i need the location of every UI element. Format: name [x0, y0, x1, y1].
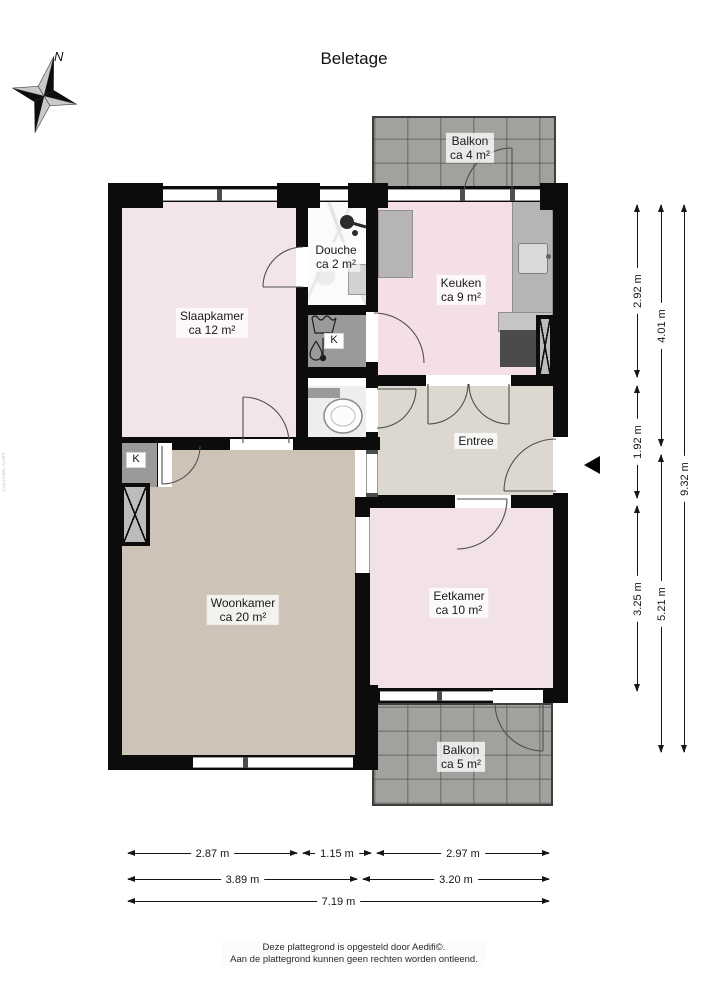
- room-name: Entree: [458, 434, 493, 448]
- dim-right-1-92: 1.92 m: [637, 386, 638, 498]
- door-arc-balkon-bottom: [495, 703, 543, 751]
- dim-label: 3.89 m: [221, 874, 265, 886]
- footer-line-1: Deze plattegrond is opgesteld door Aedif…: [230, 942, 478, 954]
- dim-right-3-25: 3.25 m: [637, 506, 638, 691]
- dim-bottom-3-89: 3.89 m: [128, 879, 357, 880]
- door-arc-slaapkamer: [243, 397, 289, 443]
- dim-right-5-21: 5.21 m: [661, 455, 662, 752]
- door-arc-eetkamer: [457, 499, 507, 549]
- door-arc-front-door: [504, 439, 556, 491]
- room-label-balkon-top: Balkon ca 4 m²: [446, 133, 494, 163]
- room-label-entree: Entree: [454, 433, 497, 449]
- room-name: Balkon: [450, 134, 490, 148]
- dim-right-4-01: 4.01 m: [661, 205, 662, 446]
- room-name: Keuken: [441, 276, 482, 290]
- room-area: ca 5 m²: [441, 757, 481, 771]
- dim-label: 2.97 m: [441, 848, 485, 860]
- room-label-keuken: Keuken ca 9 m²: [437, 275, 486, 305]
- room-area: ca 12 m²: [180, 323, 244, 337]
- dim-label: 2.92 m: [632, 268, 644, 314]
- dim-bottom-7-19: 7.19 m: [128, 901, 549, 902]
- dim-label: 3.20 m: [434, 874, 478, 886]
- toilet-icon: [324, 399, 362, 433]
- room-area: ca 10 m²: [433, 603, 484, 617]
- dim-label: 1.92 m: [632, 419, 644, 465]
- room-label-douche: Douche ca 2 m²: [311, 242, 360, 272]
- door-arc-douche: [263, 247, 303, 287]
- footer-line-2: Aan de plattegrond kunnen geen rechten w…: [230, 954, 478, 966]
- dim-right-2-92: 2.92 m: [637, 205, 638, 377]
- dim-bottom-1-15: 1.15 m: [303, 853, 371, 854]
- compass-rose-icon: N: [8, 46, 92, 142]
- dim-label: 1.15 m: [315, 848, 359, 860]
- dim-bottom-2-97: 2.97 m: [377, 853, 549, 854]
- room-name: Balkon: [441, 743, 481, 757]
- dim-label: 9.32 m: [679, 456, 691, 502]
- dim-label: 2.87 m: [191, 848, 235, 860]
- compass-north-label: N: [54, 49, 64, 64]
- door-arc-keuken-entree-left: [428, 384, 468, 424]
- footer-disclaimer: Deze plattegrond is opgesteld door Aedif…: [0, 941, 708, 967]
- room-label-eetkamer: Eetkamer ca 10 m²: [429, 588, 488, 618]
- room-label-balkon-bottom: Balkon ca 5 m²: [437, 742, 485, 772]
- room-area: ca 4 m²: [450, 148, 490, 162]
- dim-label: 3.25 m: [632, 576, 644, 622]
- door-arc-keuken-entree-right: [469, 384, 509, 424]
- room-name: Slaapkamer: [180, 309, 244, 323]
- room-area: ca 9 m²: [441, 290, 482, 304]
- dim-label: 5.21 m: [656, 581, 668, 627]
- room-label-slaapkamer: Slaapkamer ca 12 m²: [176, 308, 248, 338]
- dim-bottom-2-87: 2.87 m: [128, 853, 297, 854]
- room-name: Woonkamer: [211, 596, 275, 610]
- dim-label: 7.19 m: [317, 896, 361, 908]
- page-title: Beletage: [0, 49, 708, 69]
- dim-label: 4.01 m: [656, 303, 668, 349]
- room-label-woonkamer: Woonkamer ca 20 m²: [207, 595, 279, 625]
- door-arc-keuken: [374, 313, 424, 363]
- entrance-arrow-icon: [584, 456, 600, 474]
- floorplan-page: Beletage N: [0, 0, 708, 1000]
- shower-head-icon: [340, 215, 366, 236]
- door-arc-living-closet: [162, 446, 200, 484]
- room-name: Douche: [315, 243, 356, 257]
- dim-bottom-3-20: 3.20 m: [363, 879, 549, 880]
- room-area: ca 2 m²: [315, 257, 356, 271]
- door-arc-wc: [377, 389, 416, 428]
- dim-right-9-32: 9.32 m: [684, 205, 685, 752]
- room-name: Eetkamer: [433, 589, 484, 603]
- closet-label-laundry: K: [324, 333, 344, 349]
- room-area: ca 20 m²: [211, 610, 275, 624]
- closet-label-living: K: [126, 452, 146, 468]
